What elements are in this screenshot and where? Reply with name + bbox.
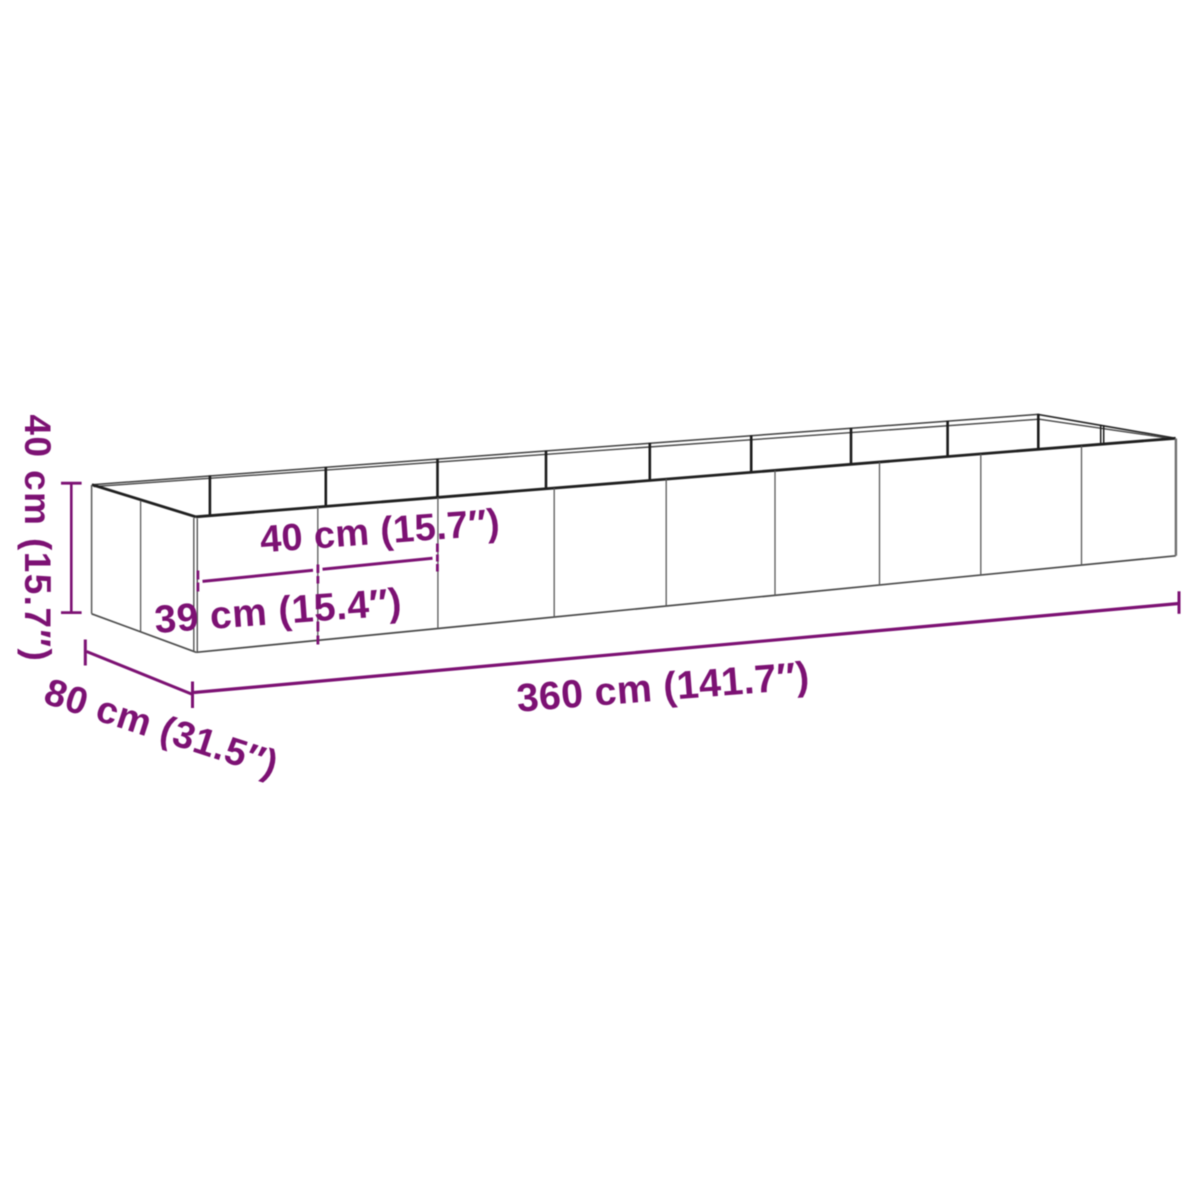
svg-text:40 cm (15.7″): 40 cm (15.7″) (17, 414, 58, 662)
